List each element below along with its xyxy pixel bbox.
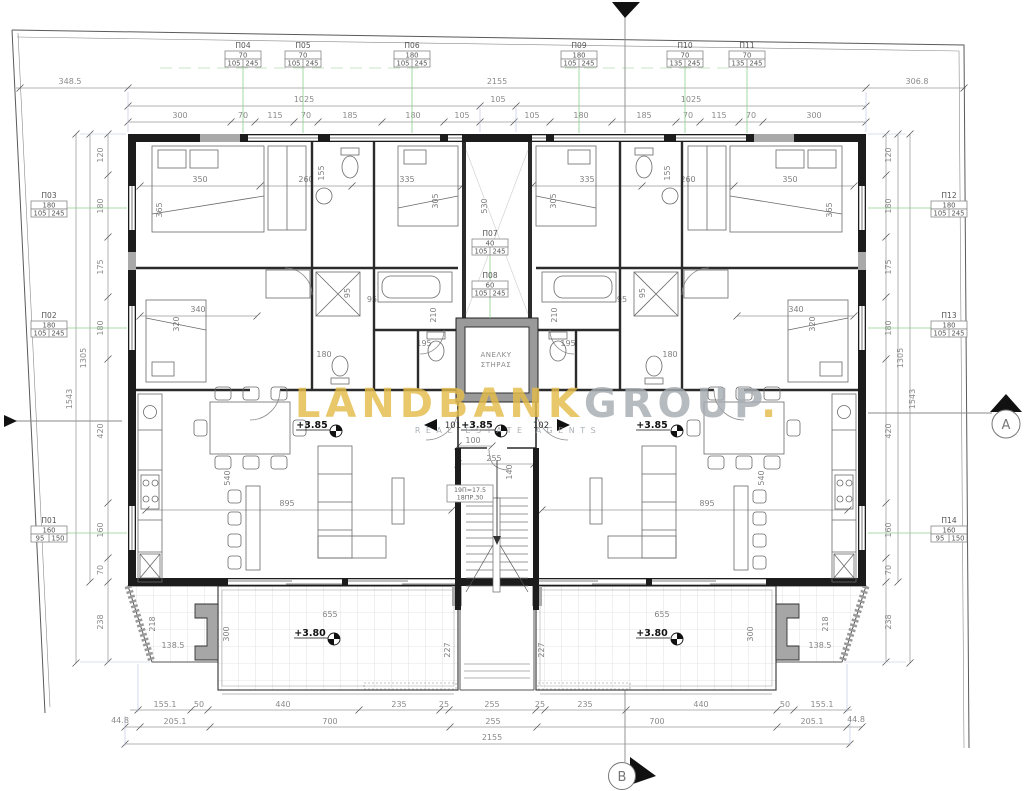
label-width: 160 [943, 527, 956, 535]
label-width: 70 [743, 52, 752, 60]
dim: 440 [275, 700, 290, 709]
window-label-p01: Π01 160 95 150 [31, 516, 67, 543]
label-s2: 245 [688, 60, 701, 68]
dim: 235 [391, 700, 406, 709]
bar-counter [734, 486, 748, 570]
dim: 895 [279, 499, 294, 508]
label-width: 180 [43, 322, 56, 330]
label-name: Π03 [41, 191, 56, 200]
dim: 335 [579, 175, 594, 184]
dim: 238 [96, 614, 105, 629]
label-s1: 135 [670, 60, 683, 68]
section-a-flag-icon [990, 394, 1022, 412]
dim: 1305 [896, 348, 905, 368]
dim: 205.1 [801, 717, 824, 726]
window-label-p03: Π03 180 105 245 [31, 191, 67, 218]
dim: 306.8 [906, 77, 929, 86]
dim: 185 [342, 111, 357, 120]
label-s1: 105 [475, 248, 488, 256]
dim: 44.8 [111, 716, 129, 725]
label-name: Π05 [295, 41, 310, 50]
label-name: Π13 [941, 311, 956, 320]
dim: 100 [465, 436, 480, 445]
stair-note-2: 18ΠΡ.30 [457, 495, 484, 502]
dim: 335 [399, 175, 414, 184]
window-label-p14: Π14 160 95 150 [931, 516, 967, 543]
dim: 365 [825, 202, 834, 217]
label-s1: 95 [936, 535, 945, 543]
dim: 70 [96, 565, 105, 575]
dim: 115 [711, 111, 726, 120]
label-name: Π01 [41, 516, 56, 525]
dim: 95 [367, 295, 377, 304]
label-name: Π10 [677, 41, 692, 50]
window-label-p08: Π08 60 105 245 [472, 271, 508, 298]
dim: 340 [788, 305, 803, 314]
dim: 195 [560, 339, 575, 348]
dim: 160 [96, 522, 105, 537]
elevator-label-2: ΣΤΗΡΑΣ [481, 361, 511, 369]
label-s2: 245 [952, 330, 965, 338]
dim: 155 [317, 165, 326, 180]
watermark-brand-gold: LANDBANK [295, 381, 584, 427]
label-s1: 105 [34, 330, 47, 338]
label-width: 70 [239, 52, 248, 60]
window-label-p04: Π04 70 105 245 [225, 41, 261, 68]
label-s1: 105 [34, 210, 47, 218]
label-s2: 245 [306, 60, 319, 68]
bar-counter [246, 486, 260, 570]
tv-bench [590, 478, 602, 524]
dim: 235 [577, 700, 592, 709]
dim: 155 [663, 165, 672, 180]
dim: 300 [806, 111, 821, 120]
dim: 155.1 [154, 700, 177, 709]
furniture-right [536, 146, 856, 582]
label-s2: 150 [952, 535, 965, 543]
dim: 205.1 [164, 717, 187, 726]
section-b-flag-icon [612, 2, 640, 18]
dim: 2155 [482, 733, 502, 742]
dim: 115 [267, 111, 282, 120]
dim: 95 [617, 295, 627, 304]
dim: 185 [636, 111, 651, 120]
dim: 350 [782, 175, 797, 184]
window-label-p13: Π13 180 105 245 [931, 311, 967, 338]
dim: 530 [480, 198, 489, 213]
dim: 25 [439, 700, 449, 709]
dim: 180 [405, 111, 420, 120]
label-name: Π14 [941, 516, 956, 525]
label-s1: 95 [36, 535, 45, 543]
label-name: Π12 [941, 191, 956, 200]
dim: 700 [322, 717, 337, 726]
dim: 700 [649, 717, 664, 726]
dim: 1025 [681, 95, 701, 104]
label-width: 70 [681, 52, 690, 60]
window-label-p07: Π07 40 105 245 [472, 229, 508, 256]
watermark-brand-gray: GROUP [584, 381, 762, 427]
label-s2: 150 [52, 535, 65, 543]
label-width: 180 [406, 52, 419, 60]
label-width: 60 [486, 282, 495, 290]
dim: 70 [683, 111, 693, 120]
dim: 1025 [294, 95, 314, 104]
label-name: Π09 [571, 41, 586, 50]
section-marker-b: B [618, 770, 627, 785]
label-name: Π07 [482, 229, 497, 238]
watermark: LANDBANKGROUP. REAL ESTATE AGENTS [295, 381, 781, 435]
dim: 1305 [79, 348, 88, 368]
window-label-p06: Π06 180 105 245 [394, 41, 430, 68]
label-name: Π06 [404, 41, 419, 50]
dim: 180 [884, 198, 893, 213]
dim: 180 [573, 111, 588, 120]
dim: 305 [549, 193, 558, 208]
stair-wall [533, 448, 539, 610]
label-width: 180 [943, 202, 956, 210]
window-label-p12: Π12 180 105 245 [931, 191, 967, 218]
dim: 300 [172, 111, 187, 120]
dim: 70 [884, 565, 893, 575]
dim: 175 [96, 259, 105, 274]
dim: 1543 [908, 389, 917, 409]
dim: 105 [454, 111, 469, 120]
label-width: 180 [943, 322, 956, 330]
dim: 25 [535, 700, 545, 709]
watermark-dot: . [761, 381, 781, 427]
label-name: Π08 [482, 271, 497, 280]
dim: 540 [757, 470, 766, 485]
dim: 210 [550, 307, 559, 322]
furniture-left [138, 146, 458, 582]
dim: 540 [223, 470, 232, 485]
dim: 175 [884, 259, 893, 274]
dim: 365 [155, 202, 164, 217]
label-s2: 245 [952, 210, 965, 218]
dim: 1543 [65, 389, 74, 409]
watermark-subtitle: REAL ESTATE AGENTS [415, 426, 601, 435]
dim: 2155 [487, 77, 507, 86]
level-symbol-icon [671, 633, 683, 645]
label-s2: 245 [493, 248, 506, 256]
tv-bench [392, 478, 404, 524]
dim: 180 [662, 350, 677, 359]
dim: 120 [96, 147, 105, 162]
label-s1: 105 [934, 210, 947, 218]
level-symbol-icon [328, 633, 340, 645]
window-label-p02: Π02 180 105 245 [31, 311, 67, 338]
label-width: 40 [486, 240, 495, 248]
label-s2: 245 [52, 210, 65, 218]
section-marker-a: A [1002, 418, 1011, 433]
dim: 238 [884, 614, 893, 629]
stair-wall [455, 448, 461, 610]
dim: 255 [486, 454, 501, 463]
label-s2: 245 [52, 330, 65, 338]
level-balcony: +3.80 [636, 628, 668, 639]
label-width: 180 [43, 202, 56, 210]
floor-plan-page: A B 348.5 2155 306.8 1025 105 [0, 0, 1024, 791]
dim: 210 [429, 307, 438, 322]
dim: 50 [194, 700, 204, 709]
label-s2: 245 [246, 60, 259, 68]
label-s2: 245 [493, 290, 506, 298]
label-width: 160 [43, 527, 56, 535]
dining-table [210, 402, 290, 454]
dim: 44.8 [847, 715, 865, 724]
dim: 895 [699, 499, 714, 508]
label-name: Π04 [235, 41, 250, 50]
dim: 348.5 [59, 77, 82, 86]
dim: 255 [485, 717, 500, 726]
level-balcony: +3.80 [294, 628, 326, 639]
label-s1: 105 [475, 290, 488, 298]
label-s2: 245 [582, 60, 595, 68]
dim: 420 [884, 423, 893, 438]
svg-text:LANDBANKGROUP.: LANDBANKGROUP. [295, 381, 781, 427]
dim: 120 [884, 147, 893, 162]
dim: 340 [190, 305, 205, 314]
dim: 180 [316, 350, 331, 359]
dim: 70 [301, 111, 311, 120]
dim: 420 [96, 423, 105, 438]
dim: 50 [780, 700, 790, 709]
dim: 255 [484, 700, 499, 709]
dim: 320 [808, 316, 817, 331]
label-s1: 135 [732, 60, 745, 68]
dim: 140 [505, 464, 514, 479]
floor-plan-drawing: A B 348.5 2155 306.8 1025 105 [0, 0, 1024, 791]
window-label-p11: Π11 70 135 245 [729, 41, 765, 68]
label-width: 180 [573, 52, 586, 60]
window-label-p05: Π05 70 105 245 [285, 41, 321, 68]
stair-note-1: 19Π=17.5 [454, 487, 486, 494]
dim: 155.1 [811, 700, 834, 709]
dim: 160 [884, 522, 893, 537]
label-s1: 105 [564, 60, 577, 68]
window-label-p10: Π10 70 135 245 [667, 41, 703, 68]
label-s1: 105 [934, 330, 947, 338]
dim: 70 [746, 111, 756, 120]
label-width: 70 [299, 52, 308, 60]
dim: 95 [638, 288, 647, 298]
label-name: Π02 [41, 311, 56, 320]
label-s2: 245 [415, 60, 428, 68]
label-s1: 105 [228, 60, 241, 68]
dim: 180 [96, 198, 105, 213]
elevator-label-1: ΑΝΕΛΚΥ [480, 351, 511, 359]
dim: 105 [490, 95, 505, 104]
dim: 105 [524, 111, 539, 120]
dim: 95 [343, 288, 352, 298]
label-s1: 105 [288, 60, 301, 68]
label-name: Π11 [739, 41, 754, 50]
label-s1: 105 [397, 60, 410, 68]
section-a-arrow-icon [4, 415, 17, 427]
entrance-court [460, 610, 534, 690]
label-s2: 245 [750, 60, 763, 68]
dim: 350 [192, 175, 207, 184]
dim: 440 [693, 700, 708, 709]
